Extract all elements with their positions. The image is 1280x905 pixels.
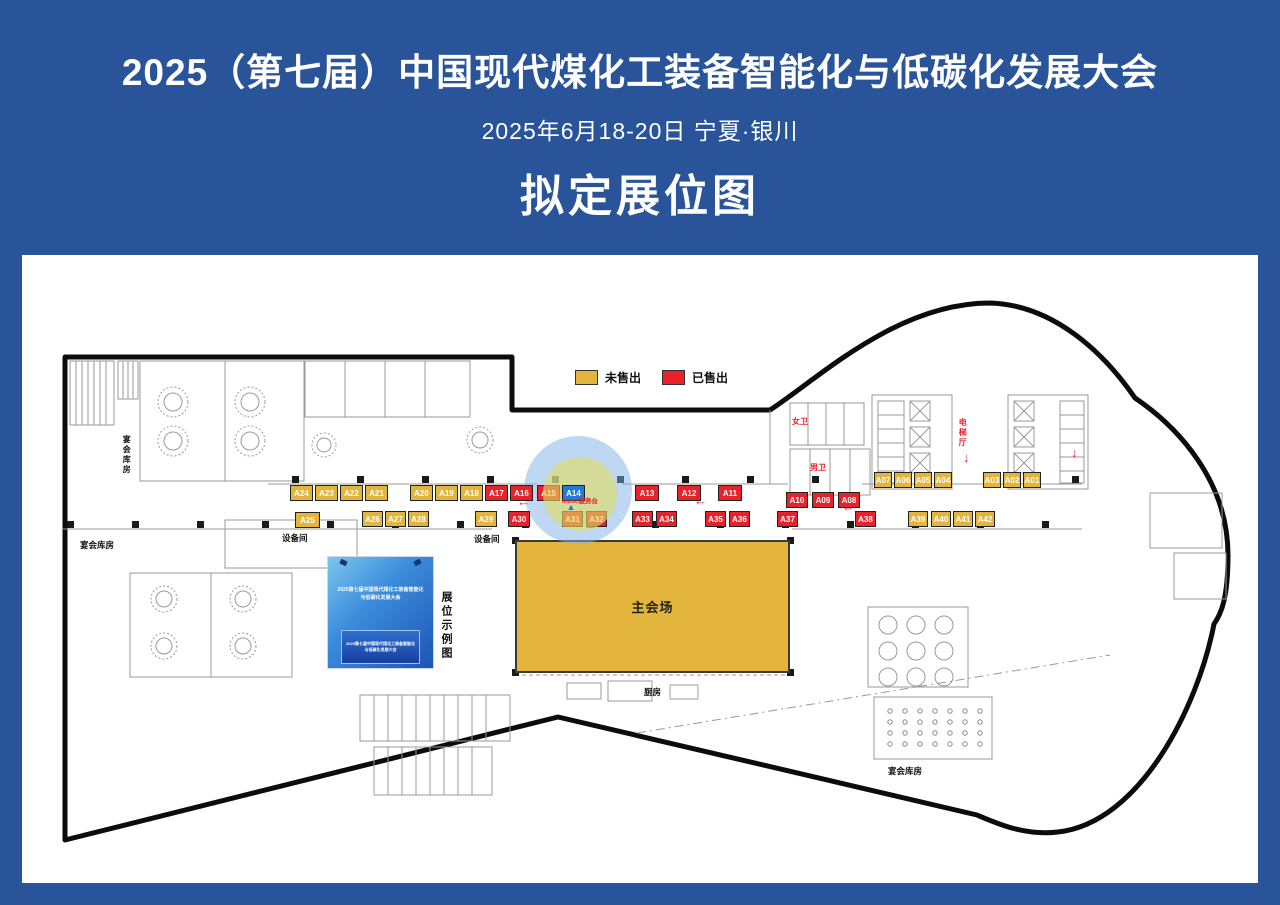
booth-A25[interactable]: A25: [295, 512, 320, 528]
left-arrow-icon: ←: [517, 495, 530, 508]
conference-title: 2025（第七届）中国现代煤化工装备智能化与低碳化发展大会: [0, 42, 1280, 96]
room-label-equipment-room-2: 设备间: [474, 535, 500, 545]
room-label-banquet-store-2: 宴会库房: [80, 541, 114, 551]
room-label-womens-restroom: 女卫: [792, 417, 808, 426]
room-label-elevator-hall: 电梯厅: [958, 418, 967, 448]
booth-A30[interactable]: A30: [508, 511, 530, 527]
booth-A07[interactable]: A07: [874, 472, 892, 488]
booth-A13[interactable]: A13: [635, 485, 659, 501]
legend-sold-swatch: [662, 370, 685, 385]
header: 2025（第七届）中国现代煤化工装备智能化与低碳化发展大会 2025年6月18-…: [0, 0, 1280, 255]
booth-A23[interactable]: A23: [315, 485, 338, 501]
room-label-kitchen: 厨房: [644, 688, 661, 698]
booth-A11[interactable]: A11: [718, 485, 742, 501]
spotlight-icon: [339, 559, 347, 566]
booth-A28[interactable]: A28: [408, 511, 429, 527]
booth-A37[interactable]: A37: [777, 511, 798, 527]
booth-A04[interactable]: A04: [934, 472, 952, 488]
booth-A03[interactable]: A03: [983, 472, 1001, 488]
booth-A02[interactable]: A02: [1003, 472, 1021, 488]
main-hall-label: 主会场: [631, 597, 673, 616]
room-label-banquet-store-3: 宴会库房: [888, 767, 922, 777]
booth-A19[interactable]: A19: [435, 485, 458, 501]
page-title: 拟定展位图: [0, 160, 1280, 224]
booth-A26[interactable]: A26: [362, 511, 383, 527]
booth-A27[interactable]: A27: [385, 511, 406, 527]
backdrop-title: 2025第七届中国现代煤化工装备智能化与低碳化发展大会: [335, 587, 426, 602]
down-arrow-icon: ↓: [1071, 446, 1078, 459]
booth-A15[interactable]: A15: [537, 485, 560, 501]
booth-A17[interactable]: A17: [485, 485, 508, 501]
booth-A01[interactable]: A01: [1023, 472, 1041, 488]
room-label-equipment-room-1: 设备间: [282, 534, 308, 544]
spotlight-icon: [413, 559, 421, 566]
booth-A42[interactable]: A42: [975, 511, 995, 527]
booth-example-label: 展位示例图: [438, 591, 454, 661]
booth-A32[interactable]: A32: [586, 511, 607, 527]
booth-A18[interactable]: A18: [460, 485, 483, 501]
room-label-mens-restroom: 男卫: [810, 463, 826, 472]
booth-A31[interactable]: A31: [562, 511, 583, 527]
location-marker-icon: ▲: [567, 503, 576, 512]
booth-example-backdrop: 2025第七届中国现代煤化工装备智能化与低碳化发展大会 2025第七届中国现代煤…: [328, 557, 433, 668]
podium-text: 2025第七届中国现代煤化工装备智能化与低碳化发展大会: [342, 641, 419, 654]
booth-A41[interactable]: A41: [953, 511, 973, 527]
booth-A21[interactable]: A21: [365, 485, 388, 501]
backdrop-podium: 2025第七届中国现代煤化工装备智能化与低碳化发展大会: [341, 630, 420, 664]
booth-A20[interactable]: A20: [410, 485, 433, 501]
legend-unsold-label: 未售出: [605, 369, 641, 386]
booth-A38[interactable]: A38: [855, 511, 876, 527]
booth-A10[interactable]: A10: [786, 492, 808, 508]
floor-plan-card: 未售出 已售出 主会场 2025第七届中国现代煤化工装备智能化与低碳化发展大会 …: [22, 255, 1258, 883]
booth-A24[interactable]: A24: [290, 485, 313, 501]
booth-A39[interactable]: A39: [908, 511, 928, 527]
booth-A35[interactable]: A35: [705, 511, 726, 527]
date-location: 2025年6月18-20日 宁夏·银川: [0, 112, 1280, 146]
legend: 未售出 已售出: [575, 369, 742, 386]
left-arrow-icon: ←: [842, 500, 855, 513]
booth-A29[interactable]: A29: [475, 511, 497, 527]
booth-A05[interactable]: A05: [914, 472, 932, 488]
booth-A36[interactable]: A36: [729, 511, 750, 527]
booth-A22[interactable]: A22: [340, 485, 363, 501]
legend-sold-label: 已售出: [692, 369, 728, 386]
main-hall: 主会场: [515, 540, 790, 673]
legend-unsold-swatch: [575, 370, 598, 385]
booth-A33[interactable]: A33: [632, 511, 653, 527]
booth-A40[interactable]: A40: [931, 511, 951, 527]
booth-A34[interactable]: A34: [656, 511, 677, 527]
room-label-banquet-store-1: 宴会库房: [122, 435, 131, 475]
down-arrow-icon: ↓: [963, 451, 970, 464]
booth-A06[interactable]: A06: [894, 472, 912, 488]
booth-A09[interactable]: A09: [812, 492, 834, 508]
left-arrow-icon: ←: [694, 494, 707, 507]
